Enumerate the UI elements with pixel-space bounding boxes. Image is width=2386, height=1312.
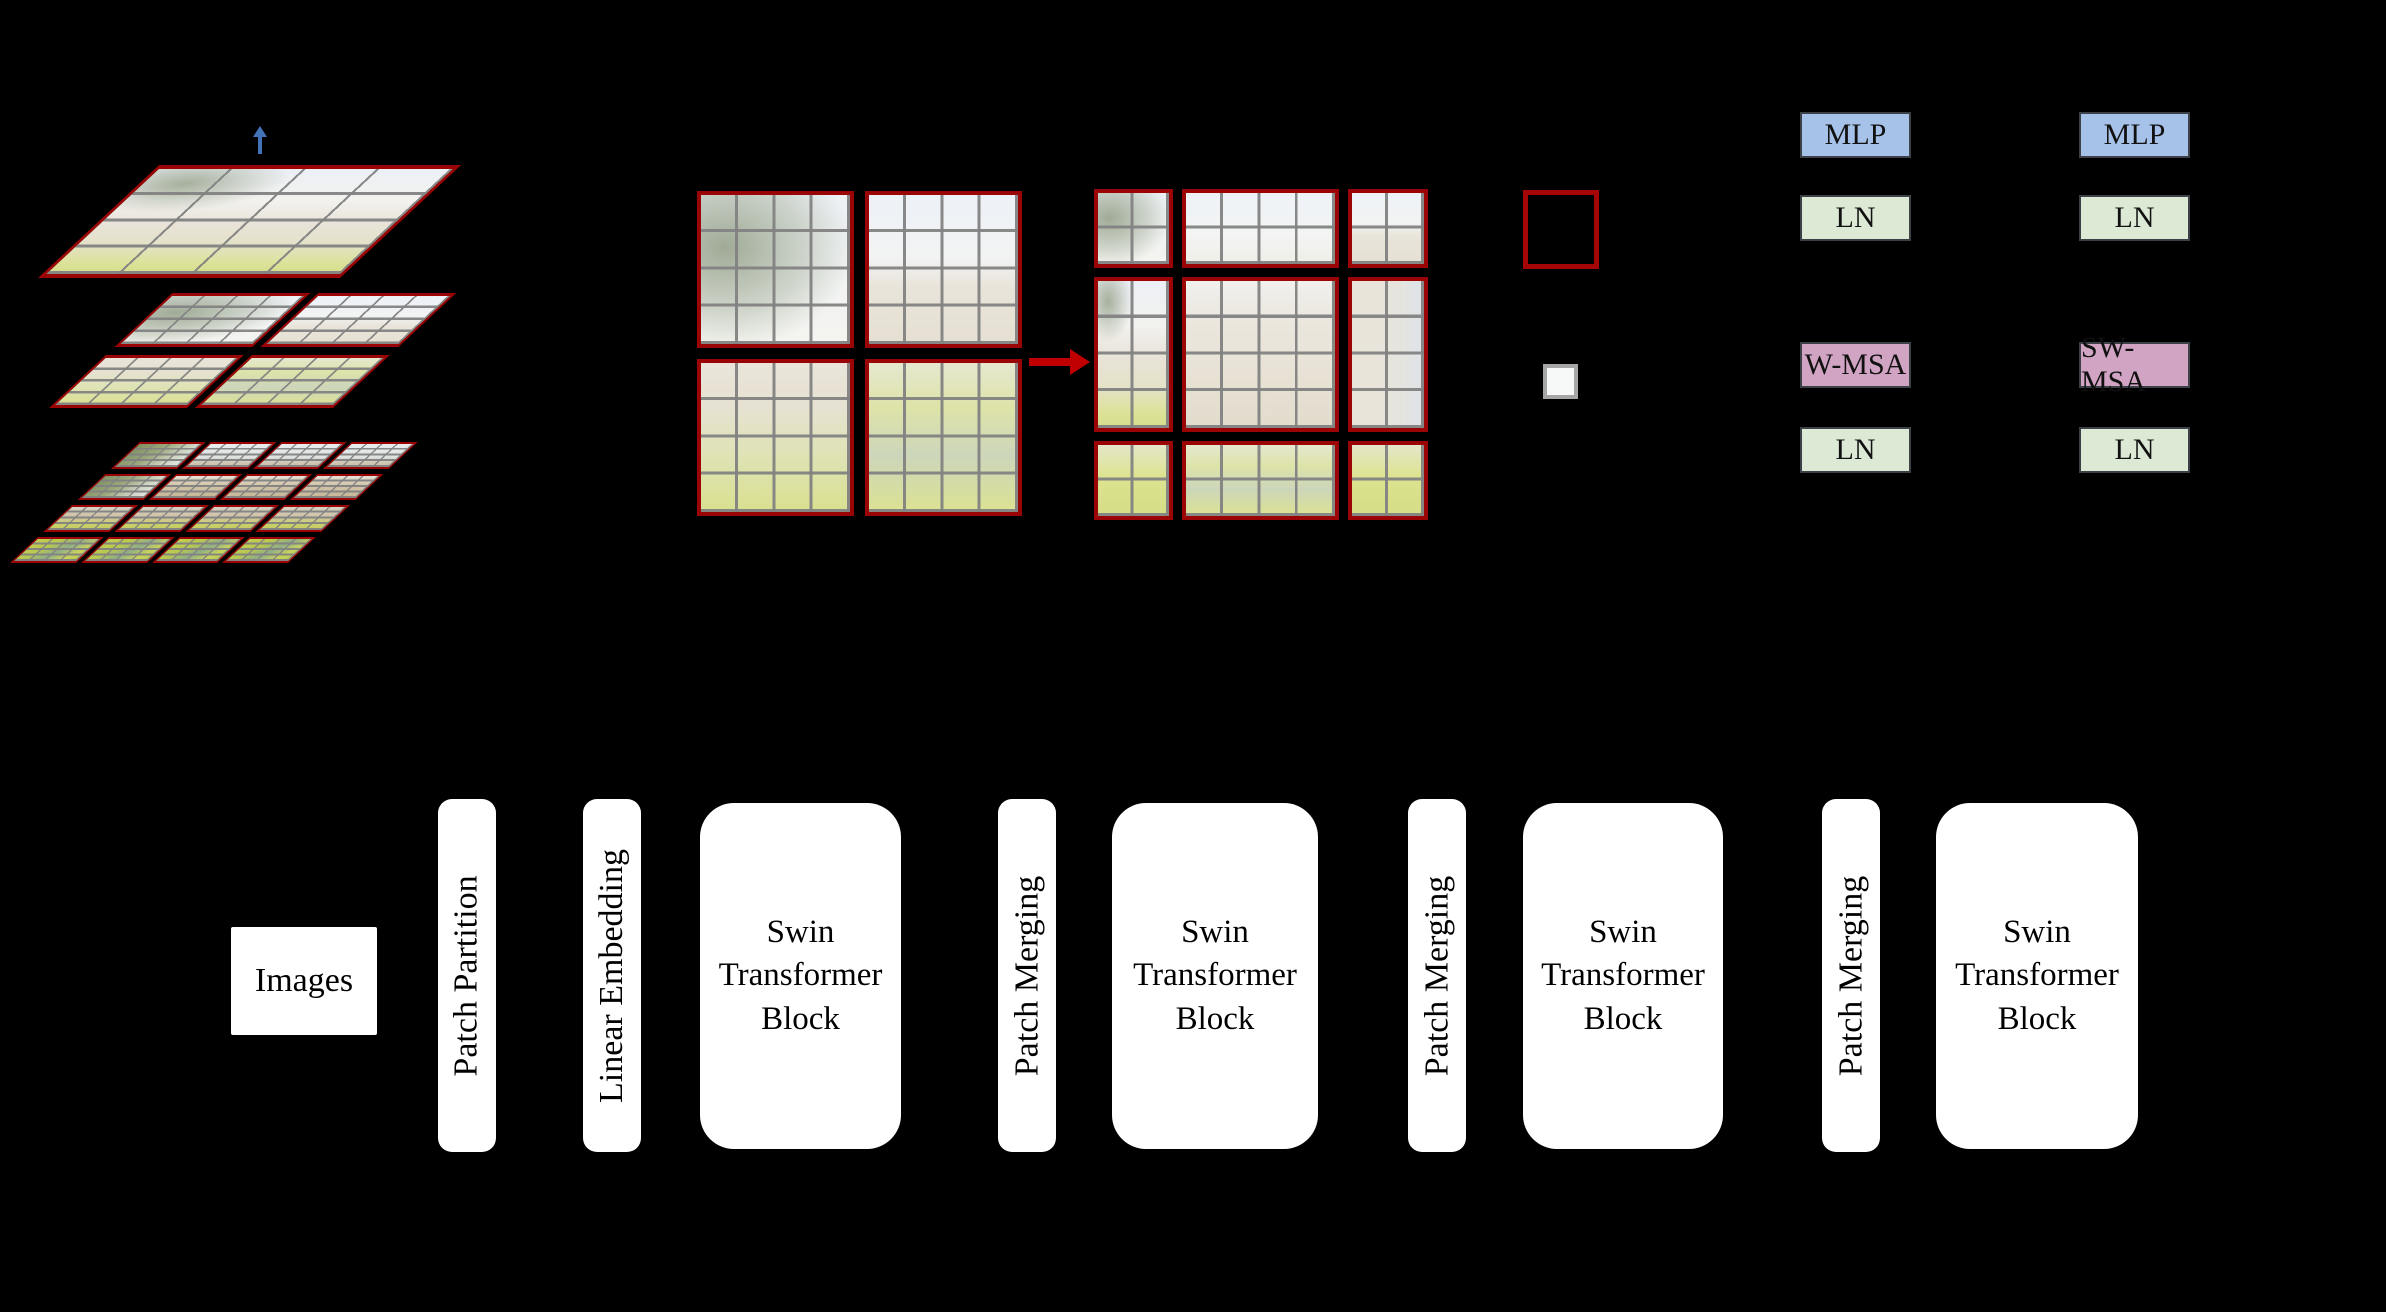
swin-block-label: SwinTransformerBlock (1541, 911, 1705, 1042)
swin-block-label: SwinTransformerBlock (1955, 911, 2119, 1042)
patch-merging-box-1: Patch Merging (998, 799, 1056, 1152)
up-arrow-head-icon (253, 126, 267, 137)
window (1182, 441, 1339, 520)
patch-merging-label: Patch Merging (1418, 875, 1456, 1076)
swin-transformer-block-2: SwinTransformerBlock (1112, 803, 1318, 1149)
swin-transformer-block-1: SwinTransformerBlock (700, 803, 901, 1149)
window (1182, 277, 1339, 432)
ln-box-right-top: LN (2079, 195, 2190, 241)
window (865, 191, 1022, 348)
linear-embedding-label: Linear Embedding (593, 849, 631, 1103)
patch-merging-box-3: Patch Merging (1822, 799, 1880, 1152)
mlp-box-right: MLP (2079, 112, 2190, 158)
shifted-window-grid-layer-l1 (1094, 189, 1428, 520)
window (697, 191, 854, 348)
window (1094, 277, 1173, 432)
up-arrow-icon (258, 136, 262, 154)
window (865, 359, 1022, 516)
patch-partition-label: Patch Partition (448, 875, 486, 1076)
images-box: Images (231, 927, 377, 1035)
window (1348, 189, 1428, 268)
patch-merging-box-2: Patch Merging (1408, 799, 1466, 1152)
swin-transformer-block-4: SwinTransformerBlock (1936, 803, 2138, 1149)
ln-box-left-bottom: LN (1800, 427, 1911, 473)
swin-block-label: SwinTransformerBlock (1133, 911, 1297, 1042)
legend-window-outline-swatch (1523, 190, 1599, 269)
patch-merging-label: Patch Merging (1008, 875, 1046, 1076)
window (38, 165, 461, 278)
window (1182, 189, 1339, 268)
swin-block-label: SwinTransformerBlock (719, 911, 883, 1042)
sw-msa-box: SW-MSA (2079, 342, 2190, 388)
feature-layer-coarse (38, 165, 461, 278)
patch-partition-box: Patch Partition (438, 799, 496, 1152)
window (1348, 277, 1428, 432)
w-msa-box: W-MSA (1800, 342, 1911, 388)
shift-arrow-head-icon (1070, 349, 1090, 375)
feature-layer-fine (10, 442, 418, 563)
shift-arrow-icon (1029, 358, 1073, 366)
window (1094, 189, 1173, 268)
window-grid-layer-l (697, 191, 1022, 516)
swin-transformer-block-3: SwinTransformerBlock (1523, 803, 1723, 1149)
feature-layer-mid (49, 293, 456, 408)
patch-merging-label: Patch Merging (1832, 875, 1870, 1076)
mlp-box-left: MLP (1800, 112, 1911, 158)
window (1094, 441, 1173, 520)
window (1348, 441, 1428, 520)
ln-box-left-top: LN (1800, 195, 1911, 241)
window (697, 359, 854, 516)
ln-box-right-bottom: LN (2079, 427, 2190, 473)
legend-patch-swatch (1543, 364, 1578, 399)
hierarchical-feature-maps (0, 0, 560, 600)
linear-embedding-box: Linear Embedding (583, 799, 641, 1152)
